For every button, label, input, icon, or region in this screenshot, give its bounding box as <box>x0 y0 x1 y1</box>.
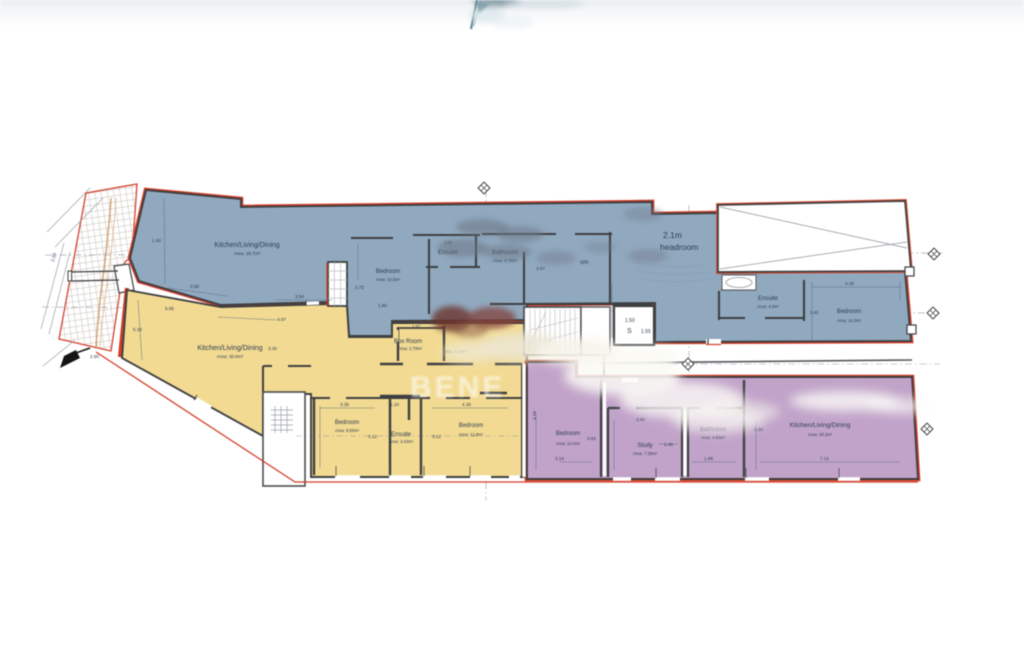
svg-text:4.97: 4.97 <box>277 317 286 322</box>
svg-text:1.50: 1.50 <box>625 318 635 324</box>
svg-text:3.97: 3.97 <box>536 266 545 271</box>
svg-text:Area: 14.0m²: Area: 14.0m² <box>556 441 581 446</box>
svg-text:headroom: headroom <box>660 242 698 252</box>
svg-text:1.80: 1.80 <box>378 303 387 308</box>
svg-text:Kitchen/Living/Dining: Kitchen/Living/Dining <box>214 242 279 249</box>
svg-text:2.1m: 2.1m <box>663 230 682 240</box>
svg-text:Study: Study <box>637 443 652 449</box>
svg-text:Area: 4.60m²: Area: 4.60m² <box>701 435 726 440</box>
svg-text:Area: 29.2m²: Area: 29.2m² <box>808 432 833 437</box>
svg-text:2.90: 2.90 <box>90 354 99 359</box>
svg-text:om: om <box>580 260 588 266</box>
svg-text:Area: 7.38m²: Area: 7.38m² <box>633 451 658 456</box>
svg-text:4.34: 4.34 <box>532 411 537 420</box>
svg-text:Area: 29.7m²: Area: 29.7m² <box>234 251 261 256</box>
svg-text:3.30: 3.30 <box>268 346 277 351</box>
svg-text:3.63: 3.63 <box>587 436 596 441</box>
svg-text:Box Room: Box Room <box>394 339 422 345</box>
svg-text:3.35: 3.35 <box>340 402 349 407</box>
svg-text:3.60: 3.60 <box>754 427 763 432</box>
svg-text:Area: 12.8m²: Area: 12.8m² <box>459 432 484 437</box>
svg-text:Bedroom: Bedroom <box>335 420 359 426</box>
svg-text:Ensuite: Ensuite <box>758 296 779 302</box>
svg-text:3.14: 3.14 <box>555 456 564 461</box>
svg-text:1.10: 1.10 <box>390 402 399 407</box>
svg-text:3.12: 3.12 <box>432 434 441 439</box>
svg-text:Kitchen/Living/Dining: Kitchen/Living/Dining <box>197 345 262 352</box>
svg-text:1.45: 1.45 <box>810 310 819 315</box>
svg-text:3.60: 3.60 <box>636 417 645 422</box>
svg-text:BENE: BENE <box>410 371 505 404</box>
svg-text:S: S <box>627 328 632 335</box>
svg-text:1.60: 1.60 <box>152 238 161 243</box>
svg-text:Bedroom: Bedroom <box>556 431 580 437</box>
svg-text:Area: 3.43m²: Area: 3.43m² <box>389 439 414 444</box>
svg-text:1.88: 1.88 <box>704 456 713 461</box>
svg-text:Area: 14.3m²: Area: 14.3m² <box>837 318 862 323</box>
svg-text:Area: 10.6m²: Area: 10.6m² <box>376 277 401 282</box>
svg-text:3.12: 3.12 <box>368 434 377 439</box>
svg-text:Bedroom: Bedroom <box>837 309 861 315</box>
svg-text:3.75: 3.75 <box>355 285 364 290</box>
svg-text:Area: 9.55m²: Area: 9.55m² <box>335 428 360 433</box>
svg-text:3.58: 3.58 <box>190 284 199 289</box>
svg-text:Area: 2.79m²: Area: 2.79m² <box>398 346 423 351</box>
svg-text:3.94: 3.94 <box>295 294 304 299</box>
svg-text:Ensuite: Ensuite <box>391 432 412 438</box>
svg-text:5.32: 5.32 <box>133 327 142 332</box>
svg-text:Bedroom: Bedroom <box>376 269 400 275</box>
svg-text:Bedroom: Bedroom <box>459 423 483 429</box>
svg-text:4.30: 4.30 <box>845 281 854 286</box>
svg-text:7.12: 7.12 <box>820 456 829 461</box>
svg-text:Area: 30.6m²: Area: 30.6m² <box>217 354 244 359</box>
svg-text:Area: 4.0m²: Area: 4.0m² <box>757 304 779 309</box>
svg-text:1.87: 1.87 <box>412 324 421 329</box>
svg-text:5.85: 5.85 <box>165 306 174 311</box>
svg-text:1.55: 1.55 <box>641 329 651 335</box>
svg-text:Kitchen/Living/Dining: Kitchen/Living/Dining <box>790 422 851 429</box>
svg-text:2.45: 2.45 <box>664 442 673 447</box>
